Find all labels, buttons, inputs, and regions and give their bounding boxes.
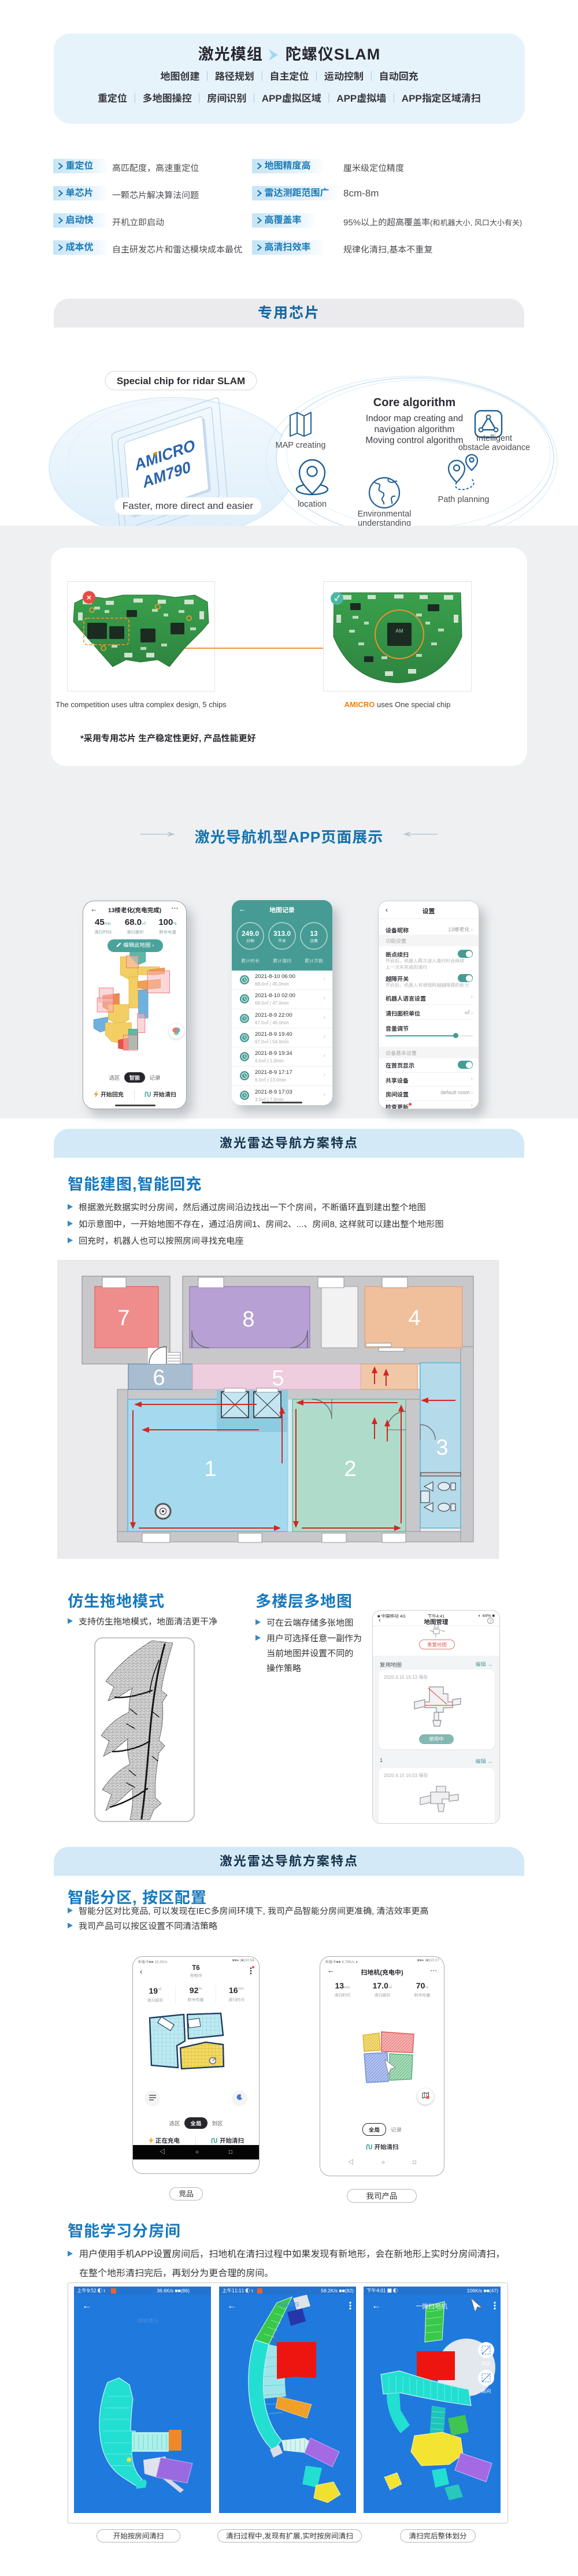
svg-text:Path planning: Path planning xyxy=(438,495,490,504)
svg-text:5: 5 xyxy=(272,1366,284,1391)
svg-text:location: location xyxy=(298,500,327,509)
svg-text:13: 13 xyxy=(310,930,318,938)
svg-text:Moving control algorithm: Moving control algorithm xyxy=(365,436,463,445)
svg-text:MAP creating: MAP creating xyxy=(276,441,326,450)
svg-text:AM: AM xyxy=(395,628,403,634)
svg-text:8: 8 xyxy=(242,1307,254,1332)
svg-text:58.2K/s ■■(82): 58.2K/s ■■(82) xyxy=(321,2288,354,2294)
svg-text:6: 6 xyxy=(153,1366,165,1390)
svg-text:1: 1 xyxy=(204,1457,216,1481)
svg-text:obstacle avoidance: obstacle avoidance xyxy=(458,443,530,452)
svg-text:Environmental: Environmental xyxy=(358,510,412,519)
svg-text:navigation algorithm: navigation algorithm xyxy=(375,425,455,434)
svg-text:Indoor map creating and: Indoor map creating and xyxy=(366,414,463,423)
svg-text:←: ← xyxy=(227,2301,236,2311)
svg-text:2: 2 xyxy=(344,1457,356,1481)
svg-text:4: 4 xyxy=(408,1306,420,1330)
svg-text:3: 3 xyxy=(436,1436,448,1460)
svg-text:Core algorithm: Core algorithm xyxy=(373,396,455,409)
svg-text:下午4:01 ■ ◐: 下午4:01 ■ ◐ xyxy=(366,2287,398,2294)
svg-text:Faster, more direct and easier: Faster, more direct and easier xyxy=(123,500,254,511)
svg-text:Intelligent: Intelligent xyxy=(476,434,512,443)
svg-text:上午11:11 ◐ τ: 上午11:11 ◐ τ xyxy=(222,2287,254,2294)
svg-text:Special chip for ridar SLAM: Special chip for ridar SLAM xyxy=(117,376,245,386)
svg-text:←: ← xyxy=(372,2301,381,2311)
svg-text:36.6K/s ■■(86): 36.6K/s ■■(86) xyxy=(157,2288,190,2294)
svg-text:7: 7 xyxy=(117,1306,129,1330)
svg-text:249.0: 249.0 xyxy=(242,930,259,938)
svg-text:313.0: 313.0 xyxy=(273,930,291,938)
svg-text:106K/s ■■(47): 106K/s ■■(47) xyxy=(467,2288,499,2294)
svg-text:上午9:52 ◐ τ: 上午9:52 ◐ τ xyxy=(77,2287,106,2294)
svg-text:←: ← xyxy=(82,2301,91,2311)
